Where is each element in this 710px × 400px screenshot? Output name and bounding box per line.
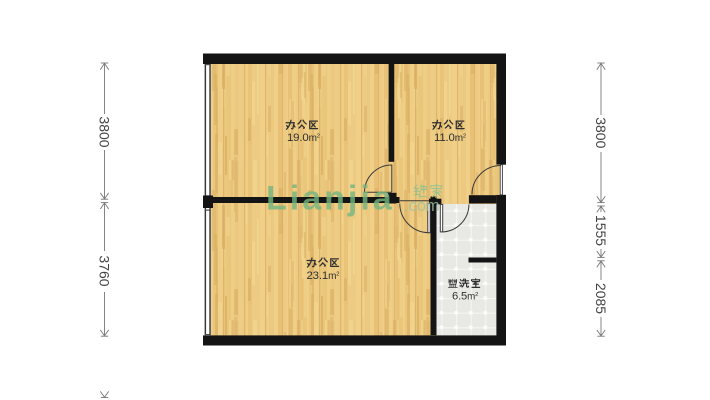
svg-text:2085: 2085: [593, 283, 609, 314]
svg-text:23.1m2: 23.1m2: [307, 270, 340, 282]
svg-text:19.0m2: 19.0m2: [287, 132, 320, 144]
svg-text:3800: 3800: [97, 116, 113, 147]
svg-text:Lianjia: Lianjia: [266, 180, 395, 218]
svg-text:6.5m2: 6.5m2: [452, 291, 478, 303]
svg-text:3760: 3760: [97, 255, 113, 286]
svg-text:11.0m2: 11.0m2: [434, 132, 466, 144]
svg-text:3800: 3800: [593, 117, 609, 148]
svg-text:.com: .com: [404, 197, 440, 215]
svg-text:1555: 1555: [593, 215, 609, 246]
